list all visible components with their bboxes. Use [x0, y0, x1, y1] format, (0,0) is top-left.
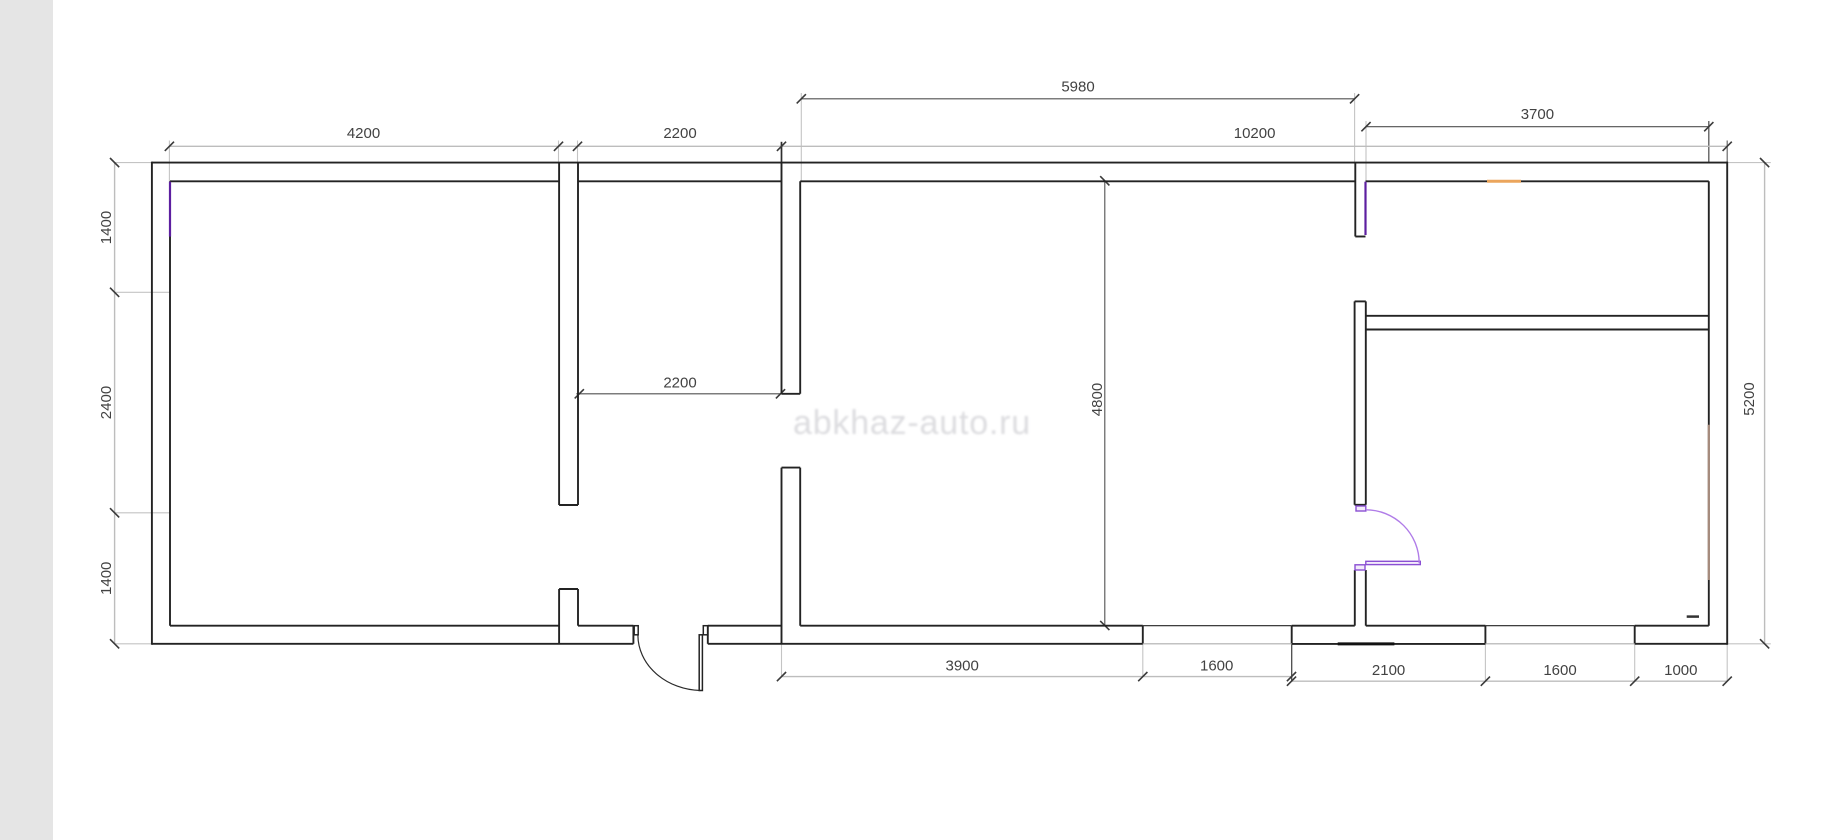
- svg-text:abkhaz-auto.ru: abkhaz-auto.ru: [793, 404, 1031, 442]
- svg-text:10200: 10200: [1234, 125, 1276, 142]
- svg-text:1600: 1600: [1200, 658, 1233, 675]
- svg-text:2400: 2400: [98, 386, 115, 419]
- svg-text:1400: 1400: [98, 211, 115, 244]
- svg-text:4800: 4800: [1089, 383, 1106, 416]
- svg-text:1400: 1400: [98, 562, 115, 595]
- svg-text:2200: 2200: [663, 374, 696, 391]
- svg-text:5980: 5980: [1061, 78, 1094, 95]
- svg-text:4200: 4200: [347, 125, 380, 142]
- svg-text:3900: 3900: [946, 658, 979, 675]
- svg-text:1600: 1600: [1543, 662, 1576, 679]
- svg-text:3700: 3700: [1521, 106, 1554, 123]
- svg-text:5200: 5200: [1741, 382, 1758, 415]
- svg-text:2200: 2200: [663, 125, 696, 142]
- svg-text:2100: 2100: [1372, 662, 1405, 679]
- svg-text:1000: 1000: [1664, 662, 1697, 679]
